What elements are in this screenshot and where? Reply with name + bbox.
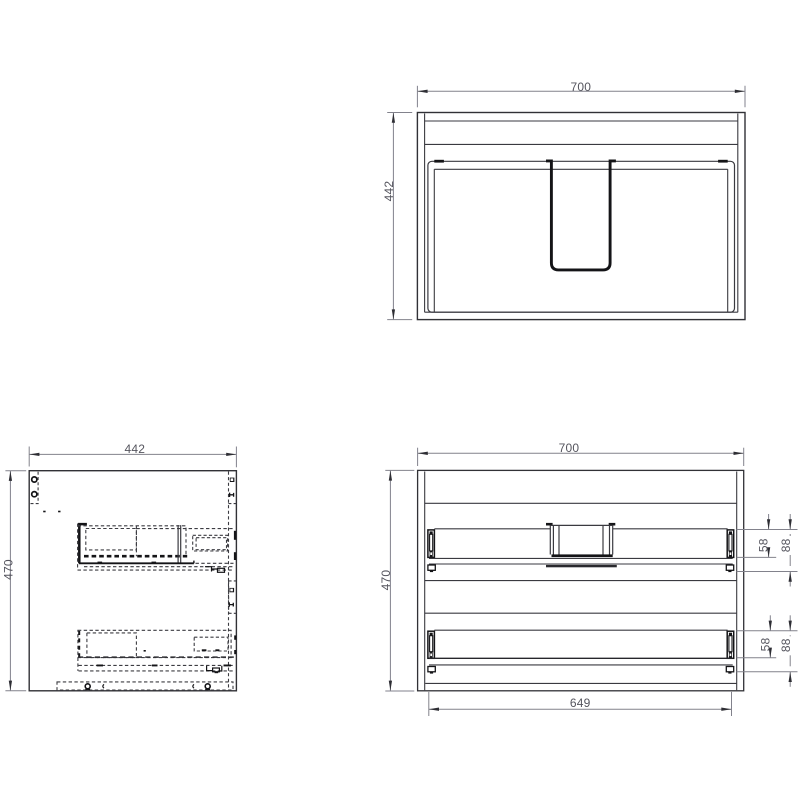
svg-text:442: 442 bbox=[124, 442, 145, 456]
svg-text:700: 700 bbox=[559, 441, 580, 455]
svg-text:649: 649 bbox=[570, 696, 591, 710]
svg-text:58: 58 bbox=[757, 538, 771, 552]
svg-text:700: 700 bbox=[570, 80, 591, 94]
svg-text:470: 470 bbox=[379, 570, 393, 591]
svg-text:470: 470 bbox=[2, 559, 16, 580]
svg-text:88: 88 bbox=[779, 538, 793, 552]
svg-text:88: 88 bbox=[779, 638, 793, 652]
svg-text:58: 58 bbox=[758, 638, 772, 652]
svg-text:442: 442 bbox=[382, 181, 396, 202]
